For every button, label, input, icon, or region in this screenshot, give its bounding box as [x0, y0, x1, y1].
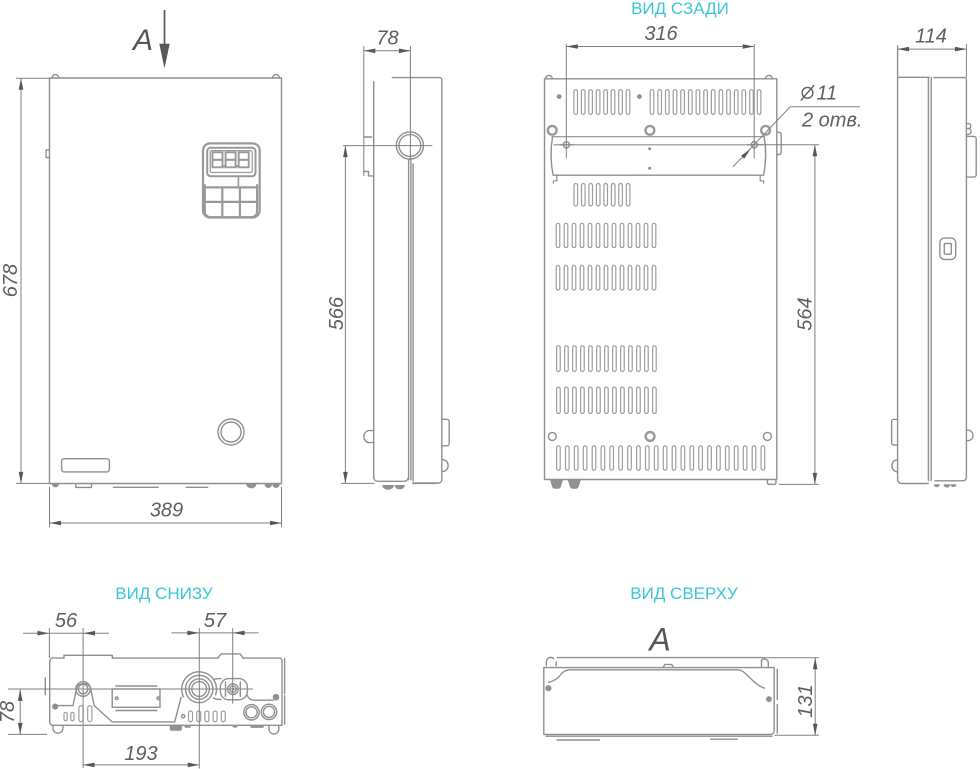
svg-text:131: 131 [795, 684, 817, 717]
svg-text:A: A [131, 24, 153, 57]
svg-text:678: 678 [0, 264, 22, 297]
svg-text:2 отв.: 2 отв. [801, 110, 862, 132]
svg-text:564: 564 [795, 297, 817, 330]
svg-text:ВИД СЗАДИ: ВИД СЗАДИ [631, 0, 729, 18]
svg-text:78: 78 [0, 701, 19, 723]
svg-text:566: 566 [326, 296, 348, 330]
svg-text:ВИД СВЕРХУ: ВИД СВЕРХУ [630, 584, 738, 603]
svg-text:78: 78 [376, 28, 398, 50]
svg-text:193: 193 [124, 743, 157, 765]
svg-text:57: 57 [204, 610, 227, 632]
svg-text:11: 11 [817, 83, 838, 105]
svg-text:ВИД СНИЗУ: ВИД СНИЗУ [115, 584, 213, 603]
svg-text:316: 316 [644, 23, 678, 45]
svg-text:A: A [647, 622, 670, 658]
svg-text:389: 389 [150, 500, 183, 522]
svg-text:56: 56 [55, 610, 78, 632]
svg-text:114: 114 [915, 26, 947, 48]
